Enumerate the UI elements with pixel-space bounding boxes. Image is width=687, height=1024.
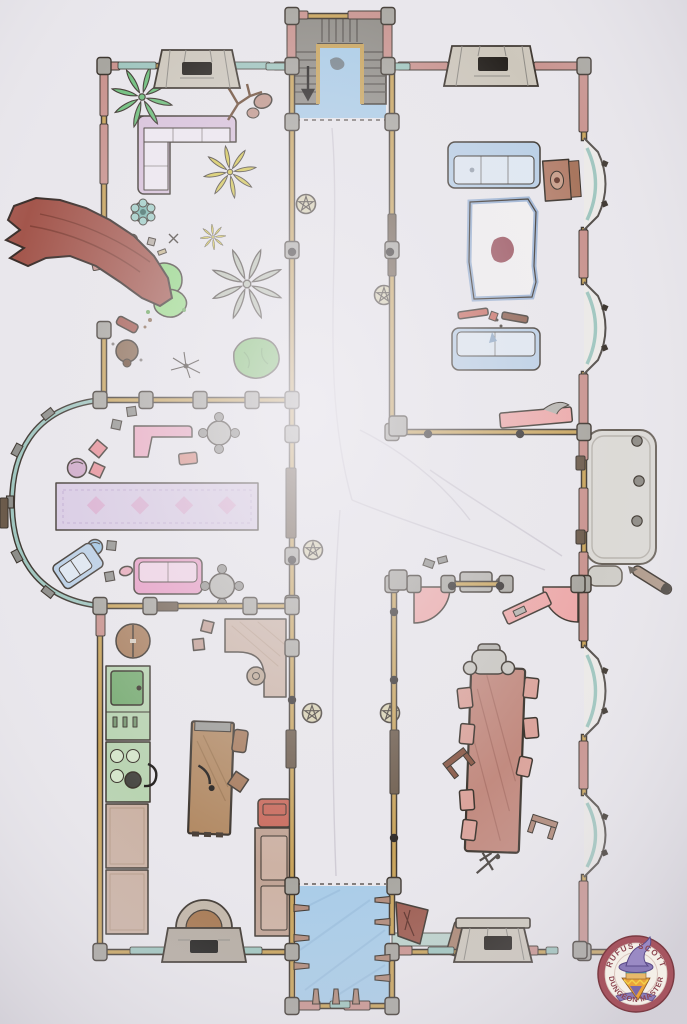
stepping-stone xyxy=(632,516,642,526)
round-chair xyxy=(68,459,87,478)
wall-pillar xyxy=(97,322,111,339)
wall-pillar xyxy=(97,58,111,75)
wall-pillar xyxy=(245,392,259,409)
pentagram-glyph xyxy=(303,704,322,723)
wall-pillar xyxy=(385,998,399,1015)
wall-pillar xyxy=(577,58,591,75)
wall-pillar xyxy=(285,58,299,75)
wall-pink-segment xyxy=(100,124,108,184)
fireplace-conservatory xyxy=(154,50,240,88)
side-table xyxy=(179,452,198,465)
stove xyxy=(106,742,156,802)
wall-pillar xyxy=(93,598,107,615)
wall-pink-segment xyxy=(534,62,578,70)
wall-peg xyxy=(375,975,390,982)
wall-pillar xyxy=(285,640,299,657)
chair xyxy=(232,729,249,753)
sink-counter xyxy=(106,666,150,740)
wall-pillar xyxy=(285,998,299,1015)
wall-pink-segment xyxy=(579,230,588,278)
wall-pink-segment xyxy=(579,374,588,428)
wall-peg xyxy=(375,919,390,926)
wall-door xyxy=(576,530,585,544)
torch-sconce-icon xyxy=(496,582,504,590)
stool xyxy=(193,638,205,650)
round-stool xyxy=(247,667,265,685)
torch-sconce-icon xyxy=(448,582,456,590)
torch-sconce-icon xyxy=(424,430,432,438)
wall-pillar xyxy=(389,416,407,436)
cabinet xyxy=(543,159,582,201)
dm-badge: RUFUS SCOTT DUNGEON MASTER xyxy=(598,936,674,1012)
stepping-stone xyxy=(632,436,642,446)
wall-glass-segment xyxy=(130,947,168,954)
wall-door xyxy=(286,468,296,538)
wall-pillar xyxy=(285,114,299,131)
sofa-blue-top xyxy=(448,142,540,188)
wall-pillar xyxy=(139,392,153,409)
torch-sconce-icon xyxy=(390,608,398,616)
wall-glass-segment xyxy=(118,62,156,69)
wall-pink-segment xyxy=(579,881,588,947)
wall-pillar xyxy=(285,598,299,615)
wall-door xyxy=(0,498,8,528)
wall-pink-segment xyxy=(348,11,382,19)
wall-pillar xyxy=(407,576,421,593)
torch-sconce-icon xyxy=(516,430,524,438)
stool xyxy=(111,419,122,430)
wall-pink-segment xyxy=(100,70,108,116)
sofa-blue-bottom xyxy=(452,328,540,370)
wall-pillar xyxy=(93,944,107,961)
terrace xyxy=(586,430,656,586)
wall-pillar xyxy=(387,878,401,895)
red-chair xyxy=(258,799,291,827)
sofa-pink xyxy=(134,558,202,594)
wall-glass-segment xyxy=(428,947,454,954)
wall-pillar xyxy=(285,8,299,25)
torch-sconce-icon xyxy=(288,248,296,256)
cooking-pot xyxy=(125,772,141,788)
wall-door xyxy=(390,730,399,794)
torch-sconce-icon xyxy=(288,556,296,564)
wall-pillar xyxy=(381,8,395,25)
wall-door xyxy=(576,456,585,470)
fireplace-dining xyxy=(454,918,532,962)
wall-pillar xyxy=(385,114,399,131)
round-split-table xyxy=(116,624,150,658)
stool xyxy=(201,620,214,633)
torch-sconce-icon xyxy=(390,834,398,842)
stepping-stone xyxy=(634,476,644,486)
wall-peg xyxy=(353,989,360,1004)
wall-pillar xyxy=(577,424,591,441)
wall-peg xyxy=(313,989,320,1004)
wall-peg xyxy=(294,963,309,970)
pentagram-glyph xyxy=(304,541,323,560)
wall-pink-segment xyxy=(579,588,588,641)
floorplan-page: RUFUS SCOTT DUNGEON MASTER xyxy=(0,0,687,1024)
wall-door xyxy=(286,730,296,768)
stool xyxy=(126,406,136,416)
wall-pillar xyxy=(193,392,207,409)
wall-peg xyxy=(375,955,390,962)
wall-pillar xyxy=(243,598,257,615)
wall-peg xyxy=(294,905,309,912)
wall-peg xyxy=(375,897,390,904)
wall-glass-segment xyxy=(546,947,558,954)
torch-sconce-icon xyxy=(390,676,398,684)
wall-peg xyxy=(333,989,340,1004)
torch-sconce-icon xyxy=(288,696,296,704)
wall-pillar xyxy=(285,426,299,443)
wall-peg xyxy=(294,935,309,942)
wall-pillar xyxy=(143,598,157,615)
wall-pillar xyxy=(285,944,299,961)
long-rug xyxy=(56,483,258,530)
wall-glass-segment xyxy=(234,62,270,69)
wall-pillar xyxy=(573,942,587,959)
stool xyxy=(104,571,114,581)
rug-stained xyxy=(469,199,536,299)
wall-pink-segment xyxy=(579,488,588,532)
wall-pink-segment xyxy=(579,741,588,789)
bush xyxy=(234,338,279,378)
work-table xyxy=(188,721,234,837)
pentagram-glyph xyxy=(297,195,316,214)
fireplace-sitting xyxy=(444,46,538,86)
wall-pink-segment xyxy=(579,70,588,132)
wall-pillar xyxy=(571,576,585,593)
wall-pillar xyxy=(381,58,395,75)
wall-pillar xyxy=(389,570,407,590)
torch-sconce-icon xyxy=(386,248,394,256)
wall-pillar xyxy=(285,878,299,895)
stool xyxy=(106,541,116,551)
wall-pillar xyxy=(93,392,107,409)
wall-pillar xyxy=(285,392,299,409)
